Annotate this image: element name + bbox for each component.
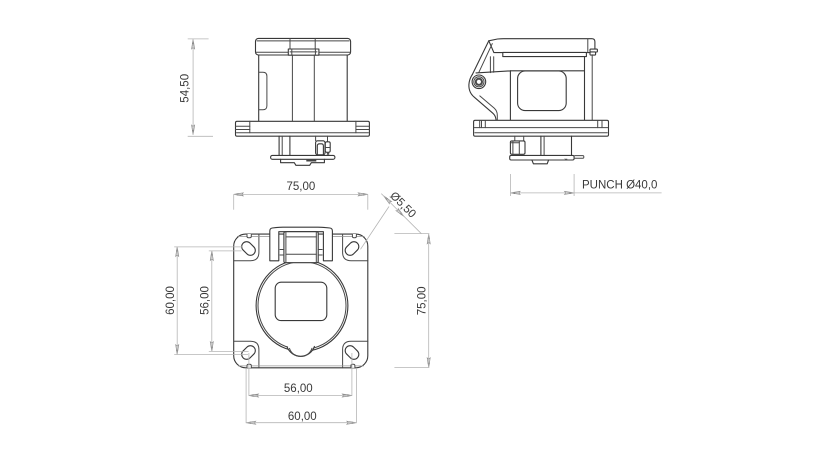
svg-text:75,00: 75,00	[287, 181, 316, 193]
svg-text:54,50: 54,50	[180, 74, 192, 103]
svg-text:75,00: 75,00	[417, 287, 429, 316]
svg-text:56,00: 56,00	[200, 286, 212, 315]
svg-text:60,00: 60,00	[288, 411, 317, 423]
svg-text:60,00: 60,00	[165, 286, 177, 315]
svg-text:56,00: 56,00	[284, 383, 313, 395]
svg-text:PUNCH Ø40,0: PUNCH Ø40,0	[582, 180, 657, 192]
